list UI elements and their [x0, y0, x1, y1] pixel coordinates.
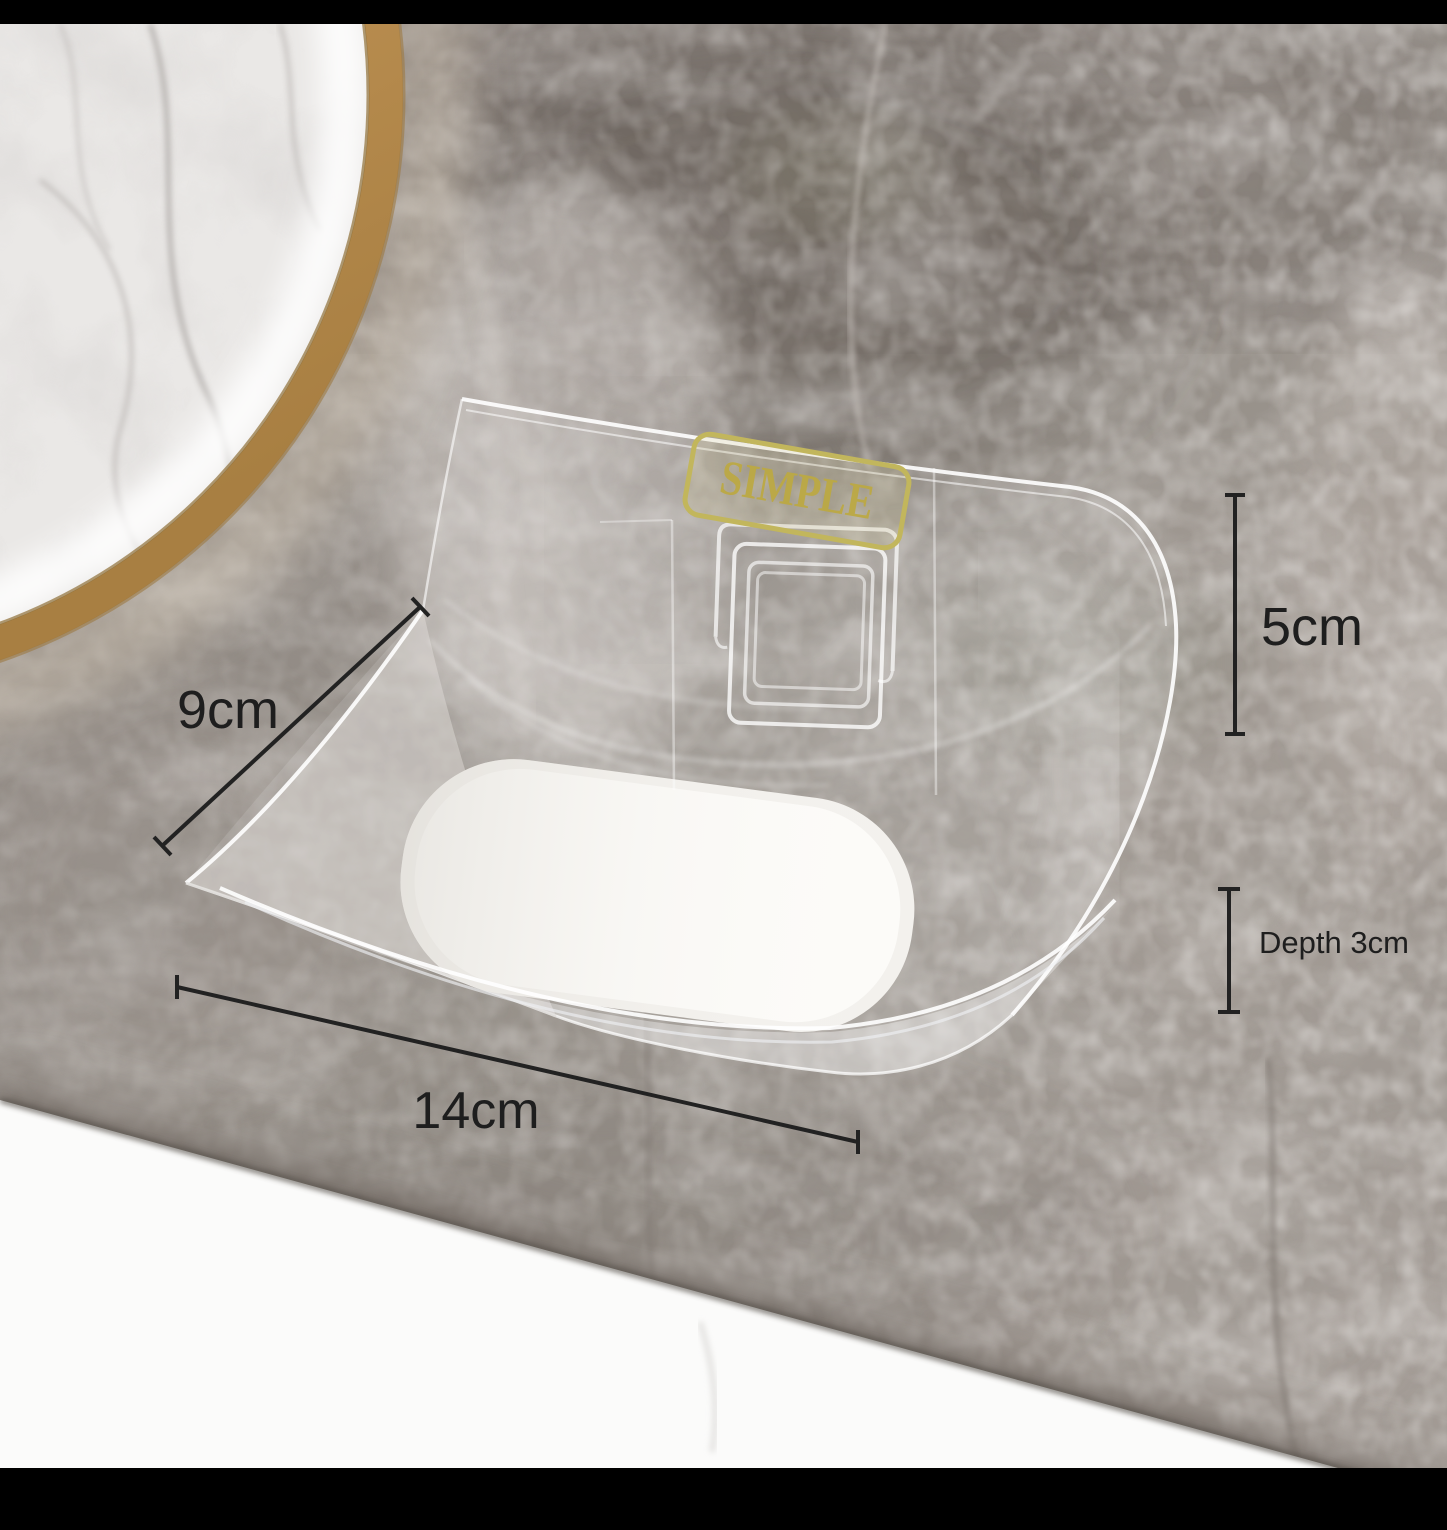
svg-text:14cm: 14cm — [412, 1082, 539, 1140]
svg-text:5cm: 5cm — [1261, 597, 1363, 657]
svg-text:Depth 3cm: Depth 3cm — [1259, 925, 1409, 960]
svg-text:9cm: 9cm — [177, 680, 279, 740]
